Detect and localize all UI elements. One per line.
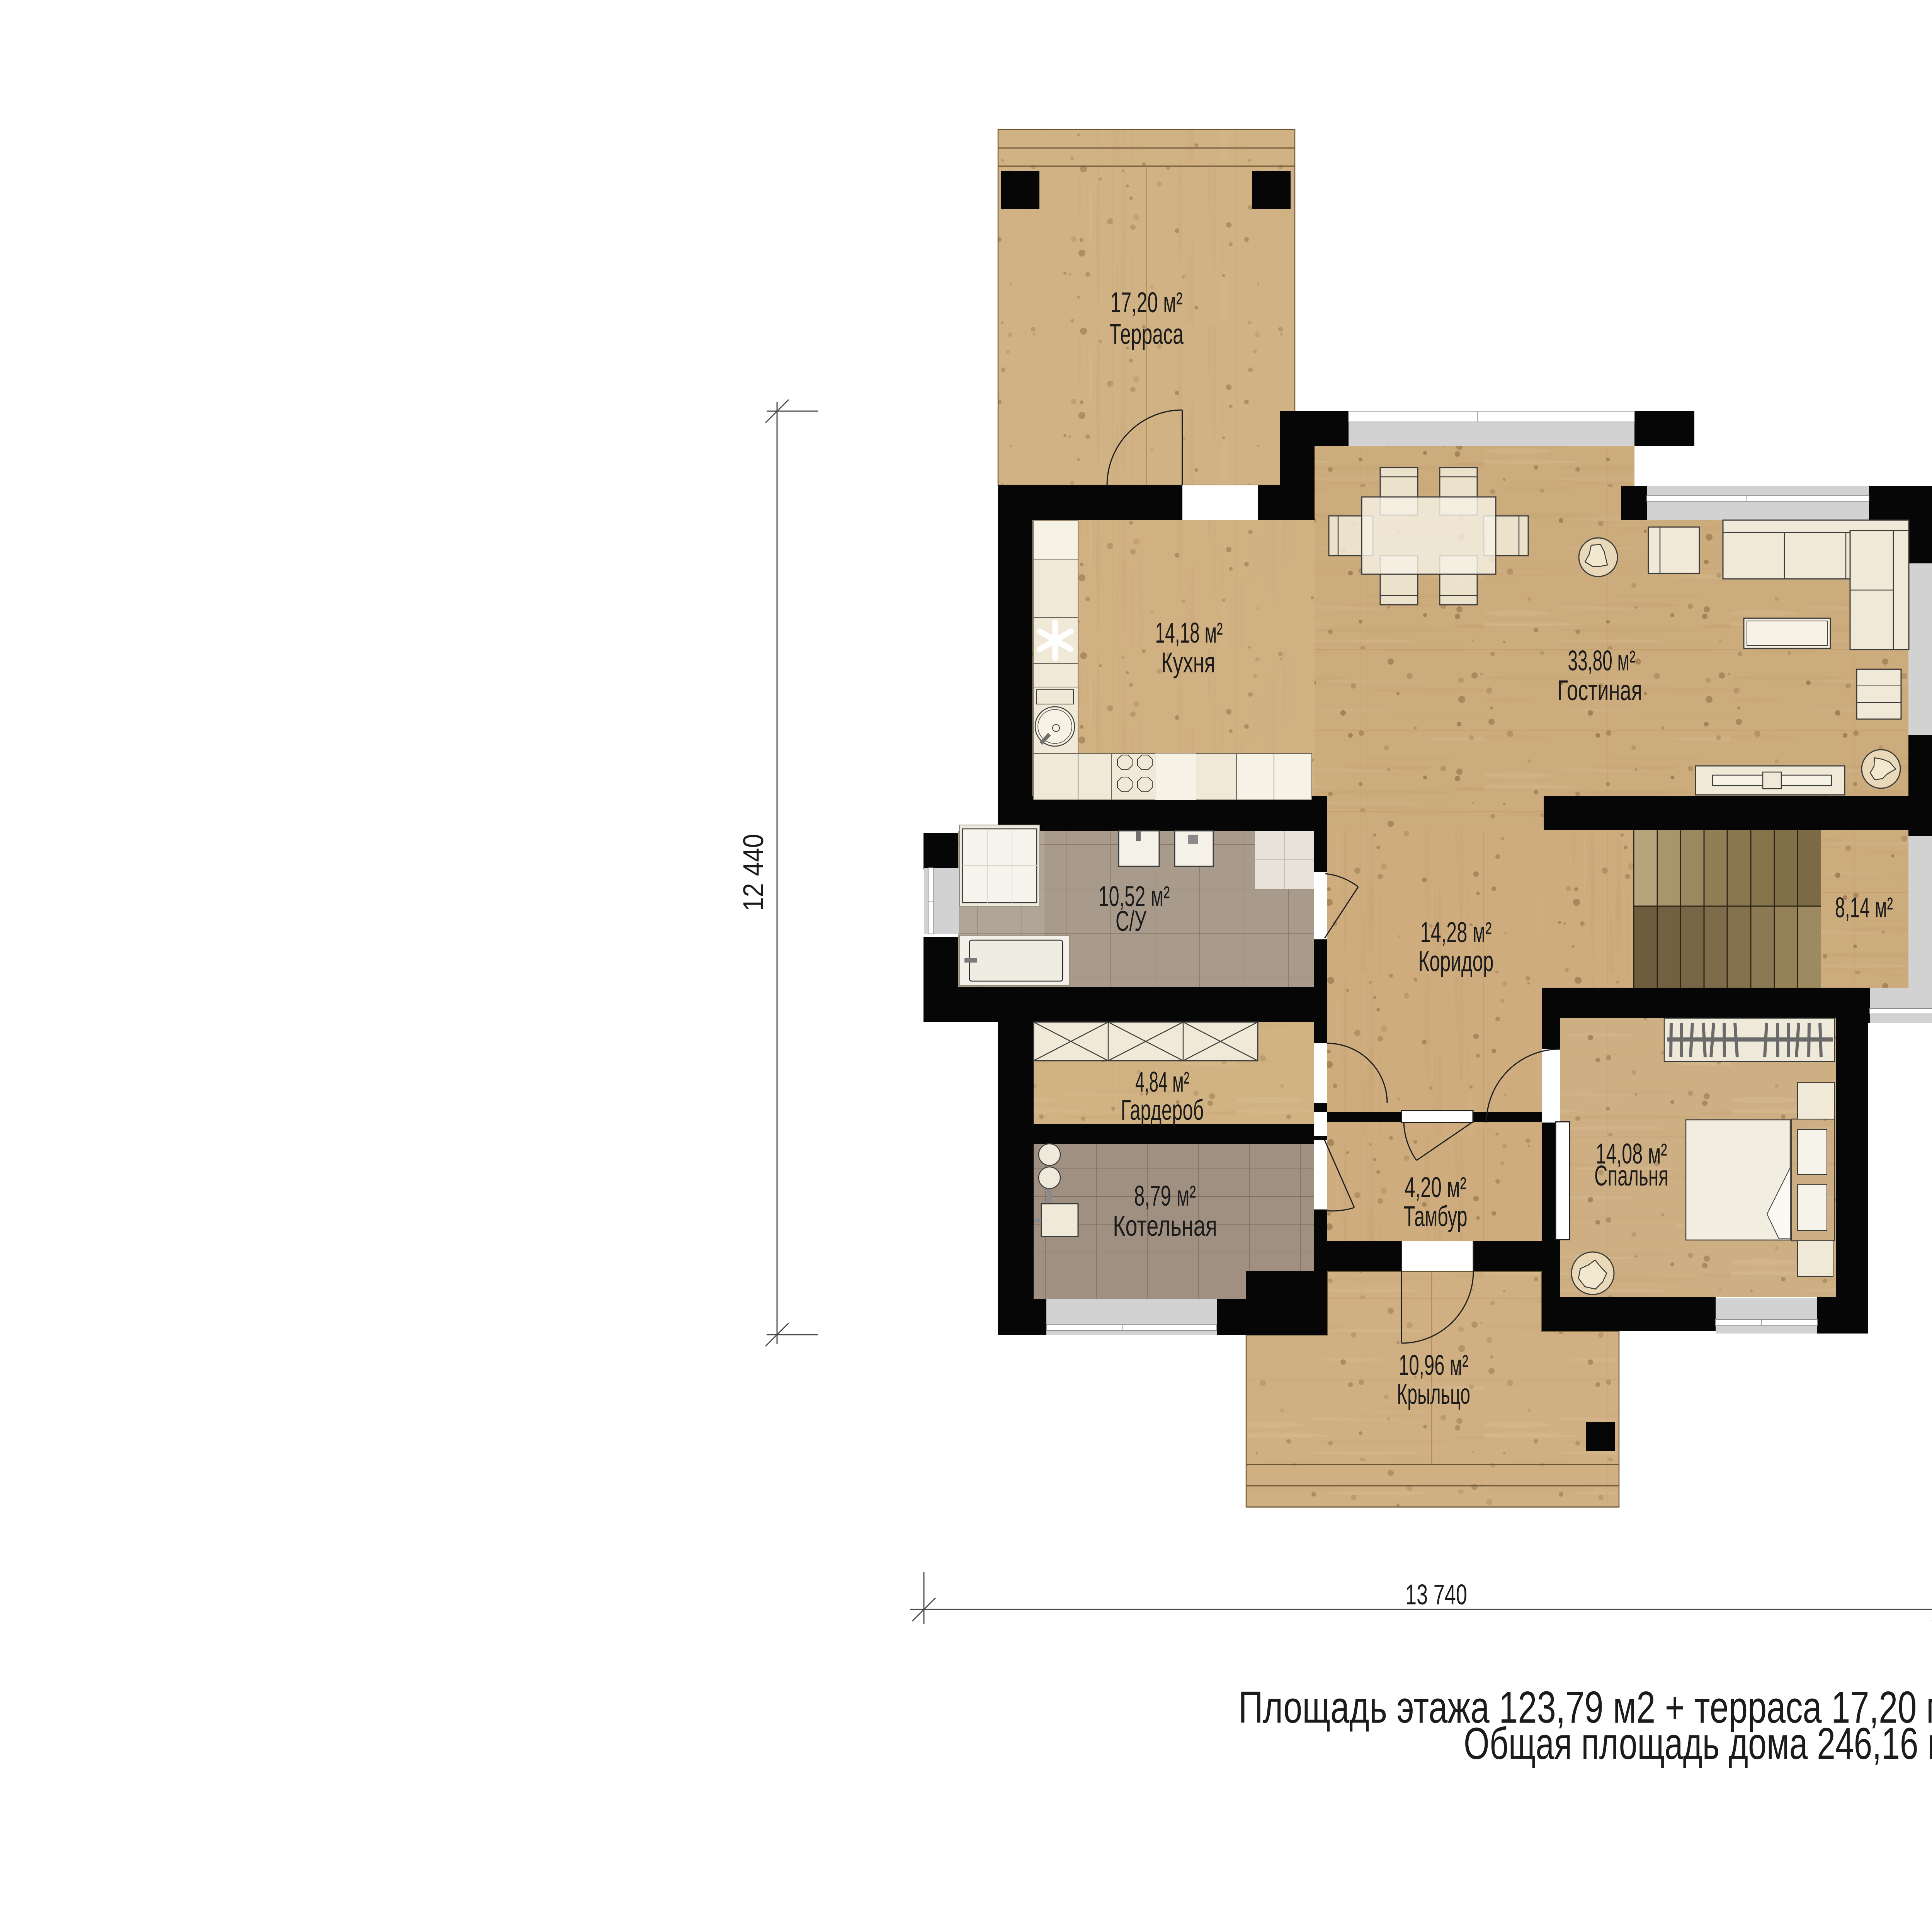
- svg-text:10,96 м²: 10,96 м²: [1399, 1349, 1468, 1381]
- svg-text:8,79 м²: 8,79 м²: [1134, 1180, 1196, 1212]
- svg-text:4,84 м²: 4,84 м²: [1135, 1066, 1189, 1098]
- svg-text:Тамбур: Тамбур: [1404, 1200, 1468, 1232]
- svg-text:8,14 м²: 8,14 м²: [1835, 891, 1893, 924]
- svg-text:4,20 м²: 4,20 м²: [1405, 1171, 1466, 1203]
- svg-text:Гардероб: Гардероб: [1121, 1094, 1204, 1126]
- svg-text:Котельная: Котельная: [1113, 1210, 1217, 1242]
- svg-text:14,18 м²: 14,18 м²: [1155, 617, 1223, 649]
- svg-text:12 440: 12 440: [737, 834, 769, 911]
- svg-text:С/У: С/У: [1116, 905, 1147, 937]
- svg-text:Общая площадь дома 246,16 м2: Общая площадь дома 246,16 м2: [1464, 1718, 1932, 1769]
- svg-text:33,80 м²: 33,80 м²: [1568, 645, 1636, 677]
- svg-text:13 740: 13 740: [1405, 1579, 1467, 1611]
- svg-text:14,28 м²: 14,28 м²: [1420, 916, 1492, 948]
- svg-text:17,20 м²: 17,20 м²: [1111, 286, 1183, 318]
- svg-text:Спальня: Спальня: [1594, 1160, 1668, 1192]
- svg-text:Гостиная: Гостиная: [1557, 674, 1642, 706]
- svg-text:Терраса: Терраса: [1109, 318, 1184, 350]
- svg-text:Крыльцо: Крыльцо: [1397, 1378, 1470, 1410]
- svg-text:Кухня: Кухня: [1161, 646, 1215, 679]
- svg-text:Коридор: Коридор: [1418, 945, 1494, 977]
